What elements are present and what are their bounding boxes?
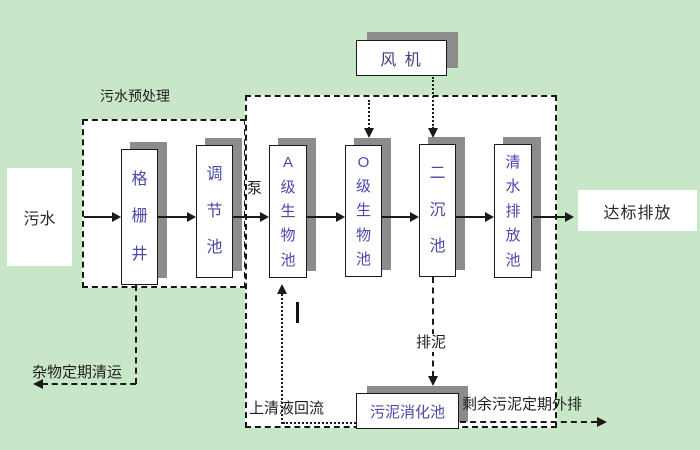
clear-water-label: 清水排放池 (495, 145, 531, 277)
sludge-discharge-label: 排泥 (415, 334, 447, 352)
influent-label: 污水 (23, 205, 55, 229)
tank-sludge-digestion: 污泥消化池 (356, 393, 459, 429)
digestion-label: 污泥消化池 (370, 401, 445, 422)
arrow-influent-to-gridwell (84, 212, 121, 222)
blower-label: 风 机 (380, 46, 422, 70)
effluent-label: 达标排放 (603, 199, 671, 223)
blower-air-line-o-bio (368, 100, 370, 129)
debris-removal-vline (135, 285, 137, 384)
tank-regulating: 调节池 (196, 145, 233, 278)
sludge-discharge-arrowhead (428, 376, 438, 386)
process-flow-diagram: 污水预处理 污水 达标排放 风 机 格栅井 调节池 A级生物池 O级生物池 二沉… (0, 0, 700, 450)
tank-grid-well: 格栅井 (121, 149, 158, 285)
effluent-box: 达标排放 (578, 190, 697, 231)
excess-sludge-line (460, 421, 597, 423)
excess-sludge-label: 剩余污泥定期外排 (462, 396, 582, 414)
blower-air-arrowhead-o-bio (364, 128, 374, 138)
blower-air-arrowhead-sedimentation (428, 128, 438, 138)
tank-o-bio: O级生物池 (345, 145, 382, 277)
tank-a-bio: A级生物池 (269, 145, 307, 278)
supernatant-return-label: 上清液回流 (249, 400, 324, 418)
debris-removal-hline (42, 383, 136, 385)
debris-removal-label: 杂物定期清运 (32, 364, 122, 382)
arrow-sedimentation-to-clearwater (456, 212, 494, 222)
arrow-regulating-to-a-bio (233, 212, 269, 222)
supernatant-return-arrowhead (277, 284, 287, 294)
influent-box: 污水 (7, 168, 72, 266)
grid-well-label: 格栅井 (122, 150, 157, 284)
tank-secondary-sedimentation: 二沉池 (419, 144, 456, 277)
arrow-a-bio-to-o-bio (307, 212, 345, 222)
pump-label: 泵 (247, 180, 262, 198)
supernatant-return-hline (283, 422, 356, 424)
o-bio-label: O级生物池 (346, 146, 381, 276)
blower-box: 风 机 (356, 40, 447, 76)
arrow-o-bio-to-sedimentation (382, 212, 419, 222)
a-bio-label: A级生物池 (270, 146, 306, 277)
arrow-clearwater-to-effluent (533, 212, 574, 222)
regulating-label: 调节池 (197, 146, 232, 277)
excess-sludge-arrowhead (597, 417, 607, 427)
pretreatment-label: 污水预处理 (100, 88, 170, 105)
blower-air-line-sedimentation (432, 77, 434, 129)
sludge-discharge-line (432, 277, 434, 377)
arrow-gridwell-to-regulating (158, 212, 196, 222)
tank-clear-water-discharge: 清水排放池 (494, 144, 532, 278)
secondary-sed-label: 二沉池 (420, 145, 455, 276)
cursor-tick-mark (296, 302, 299, 323)
